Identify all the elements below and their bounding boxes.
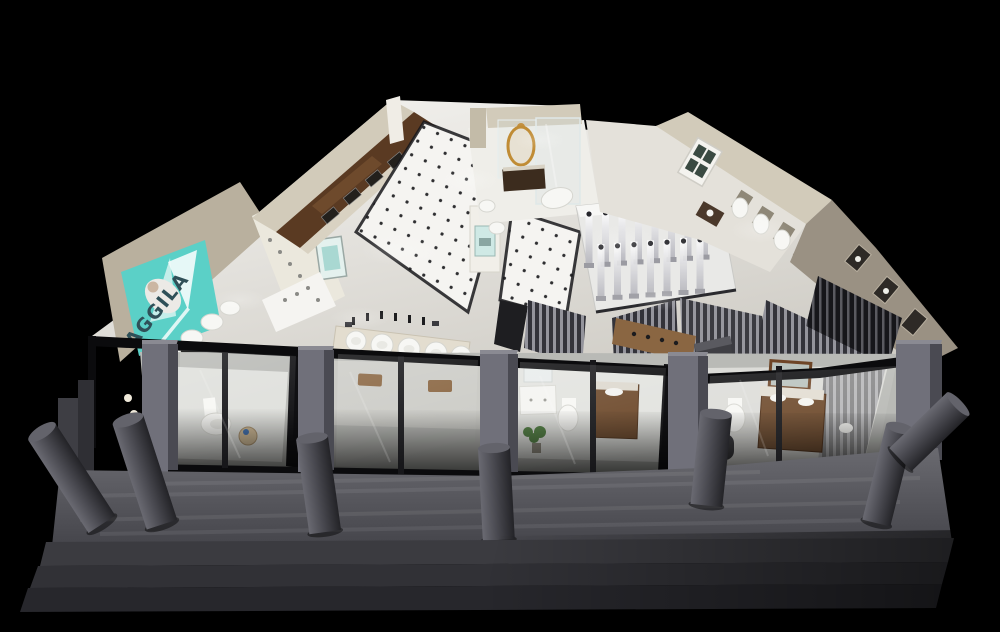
entry-column <box>470 108 486 148</box>
showroom-render: AGGILA <box>0 0 1000 632</box>
lightbox-image <box>321 245 340 271</box>
showroom-render-canvas: AGGILA <box>0 0 1000 632</box>
left-end-wall-panel-2 <box>78 380 94 472</box>
billboard-model-head <box>148 282 159 293</box>
entrance-steps <box>20 530 960 615</box>
